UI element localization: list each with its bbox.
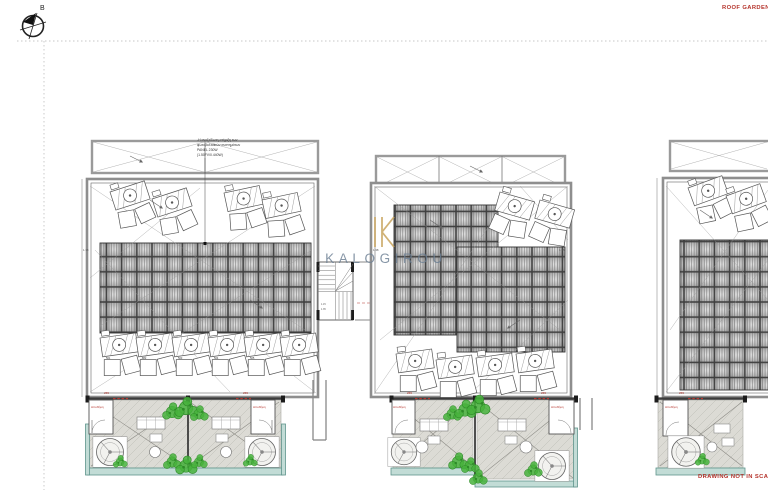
pergola-strip [670,141,768,171]
dim-label: 1.38 [83,248,89,252]
ac-unit-number: 501 [106,356,111,360]
ac-unit-row: 501 502 503 504 505 506 [98,327,321,378]
building-right [657,141,768,397]
storage-label: Αποθήκη [393,405,406,409]
storage-room: Αποθήκη [663,400,688,436]
round-table [416,441,428,453]
door-tag: 255 [407,391,412,395]
storage-room: Αποθήκη [251,400,275,434]
door-tag: 255 [104,391,109,395]
storage-room: Αποθήκη [89,400,113,434]
round-table [150,447,161,458]
storage-label: Αποθήκη [91,405,104,409]
solar-panel-array [680,240,768,390]
storage-label: Αποθήκη [253,405,266,409]
note-line: PANEL 230W [197,148,218,152]
north-label: B [40,5,45,12]
stair-dim: 1.15 [321,303,326,306]
sofa [498,419,526,431]
ac-unit-number: 505 [250,356,255,360]
solar-panel-array [100,243,311,333]
brand-wordmark: KALOGIROU [325,251,447,266]
storage-room: Αποθήκη [392,400,415,434]
jacuzzi [535,451,569,482]
planter-edge [475,481,576,487]
storage-label: Αποθήκη [665,405,678,409]
building-middle: 1.38 1.38 [371,156,576,400]
ac-unit-number: 504 [214,356,219,360]
note-line: (1.50FV/0.440W) [197,153,223,157]
sofa [420,419,448,431]
door-tag: 255 [679,391,684,395]
storage-room: Αποθήκη [549,400,574,434]
jacuzzi [388,438,420,467]
sofa [212,417,240,429]
door-tag: 255 [541,391,546,395]
ac-unit-number: 506 [286,356,291,360]
building-left: 501 502 503 504 505 506 1.38 [82,141,321,397]
terrace-middle-pair: Αποθήκη Αποθήκη 255 255 [388,391,578,487]
north-arrow-icon [20,13,46,39]
door-tag: 255 [243,391,248,395]
storage-label: Αποθήκη [551,405,564,409]
round-table [520,441,532,453]
note-line: φωτοβολταϊκών συστημάτων [197,143,241,147]
sheet-label: ROOF GARDEN [722,5,768,11]
ac-unit-number: 503 [178,356,183,360]
roof-garden-plan-sheet: B 501 502 503 504 [0,0,768,490]
terrace-right: Αποθήκη 255 [655,391,748,475]
stair-dim: 1.35 [321,308,326,311]
dim-label: 1.38 [559,248,565,252]
round-table [707,442,717,452]
scale-note: DRAWING NOT IN SCALE [698,474,768,480]
terrace-left-pair: Αποθήκη Αποθήκη 255 255 [86,391,286,475]
ac-unit-number: 502 [142,356,147,360]
note-line: -Η ανοξείδωτη στήριξη των [197,138,238,142]
floor-plan-canvas: B 501 502 503 504 [0,0,768,490]
round-table [221,447,232,458]
sofa [137,417,165,429]
